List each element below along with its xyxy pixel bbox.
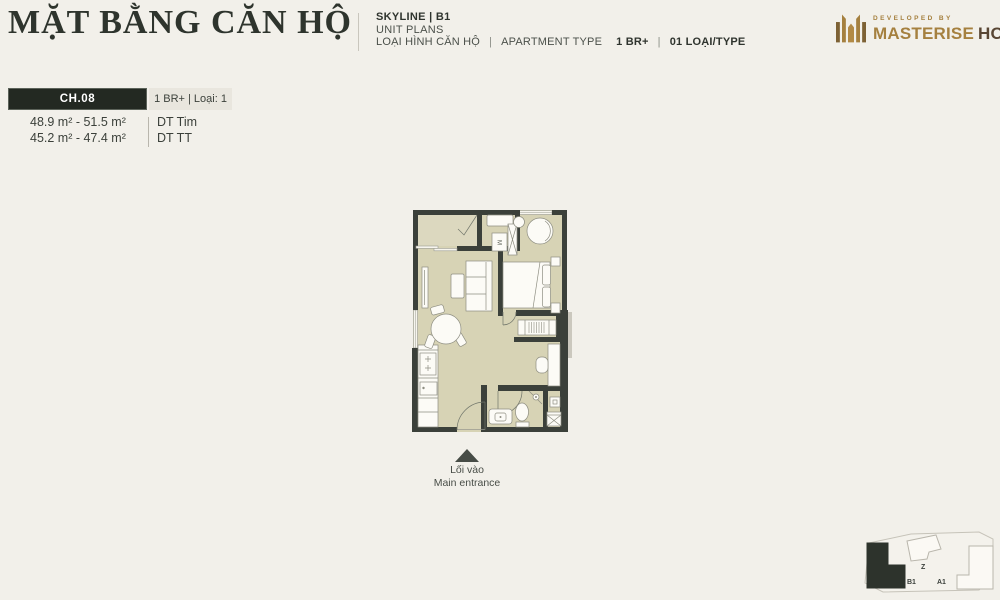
washing-machine-2 [547,412,561,426]
developer-name: MASTERISEHOMES [873,24,1000,44]
unit-type-badge: 1 BR+ | Loại: 1 [149,88,232,110]
keyplan-label-b1: B1 [907,579,916,586]
type-value: 1 BR+ [616,36,649,48]
tv-console [422,267,428,308]
nightstand [551,303,560,313]
area-row-value: 48.9 m² - 51.5 m² [30,115,126,129]
page: MẶT BẰNG CĂN HỘ SKYLINE | B1 UNIT PLANS … [0,0,1000,600]
entrance-label-vi: Lối vào [406,464,528,477]
side-table [514,217,525,228]
bed [503,262,551,308]
washing-machine: M [492,233,507,251]
stove [420,353,436,375]
sofa [466,261,492,311]
area-row-value: 45.2 m² - 47.4 m² [30,131,126,145]
round-tub [527,218,553,244]
floor-plan: M [403,198,573,438]
project-name: SKYLINE | B1 [376,11,745,24]
type-label-en: APARTMENT TYPE [501,36,602,48]
developer-logo-text: DEVELOPED BY MASTERISEHOMES [873,15,1000,44]
nightstand [551,257,560,266]
separator: | [658,36,661,48]
unit-code-badge: CH.08 [8,88,147,110]
header-info: SKYLINE | B1 UNIT PLANS LOẠI HÌNH CĂN HỘ… [376,11,745,49]
apartment-type-line: LOẠI HÌNH CĂN HỘ|APARTMENT TYPE1 BR+|01 … [376,36,745,49]
window [518,211,552,215]
unit-plans-label: UNIT PLANS [376,24,745,37]
masterise-logo-mark-icon [836,14,866,44]
main-entrance-labels: Lối vào Main entrance [406,464,528,490]
developer-logo: DEVELOPED BY MASTERISEHOMES [836,14,1000,44]
shaft [508,224,517,255]
separator: | [489,36,492,48]
keyplan: Z B1 A1 [861,527,997,597]
keyplan-label-z: Z [921,564,926,571]
washer-label: M [496,240,502,245]
utility-box [550,397,560,407]
area-row-label: DT TT [157,131,192,145]
developed-by-label: DEVELOPED BY [873,15,1000,22]
page-title: MẶT BẰNG CĂN HỘ [8,4,352,42]
ac-ledge [568,312,572,358]
coffee-table [451,274,464,298]
type-count: 01 LOẠI/TYPE [670,36,746,48]
bathroom-sink [489,409,512,424]
type-label-vi: LOẠI HÌNH CĂN HỘ [376,36,480,48]
developer-name-primary: MASTERISE [873,24,974,43]
developer-name-secondary: HOMES [978,24,1000,43]
window [414,310,418,348]
desk [548,344,560,386]
desk-chair [536,357,548,373]
area-row-label: DT Tim [157,115,197,129]
area-divider [148,117,149,147]
keyplan-label-a1: A1 [937,579,946,586]
header-divider [358,13,359,51]
kitchen-sink [420,382,437,395]
toilet [516,403,530,427]
main-entrance-marker-icon [455,449,479,462]
entrance-label-en: Main entrance [406,477,528,490]
wardrobe [518,320,556,335]
